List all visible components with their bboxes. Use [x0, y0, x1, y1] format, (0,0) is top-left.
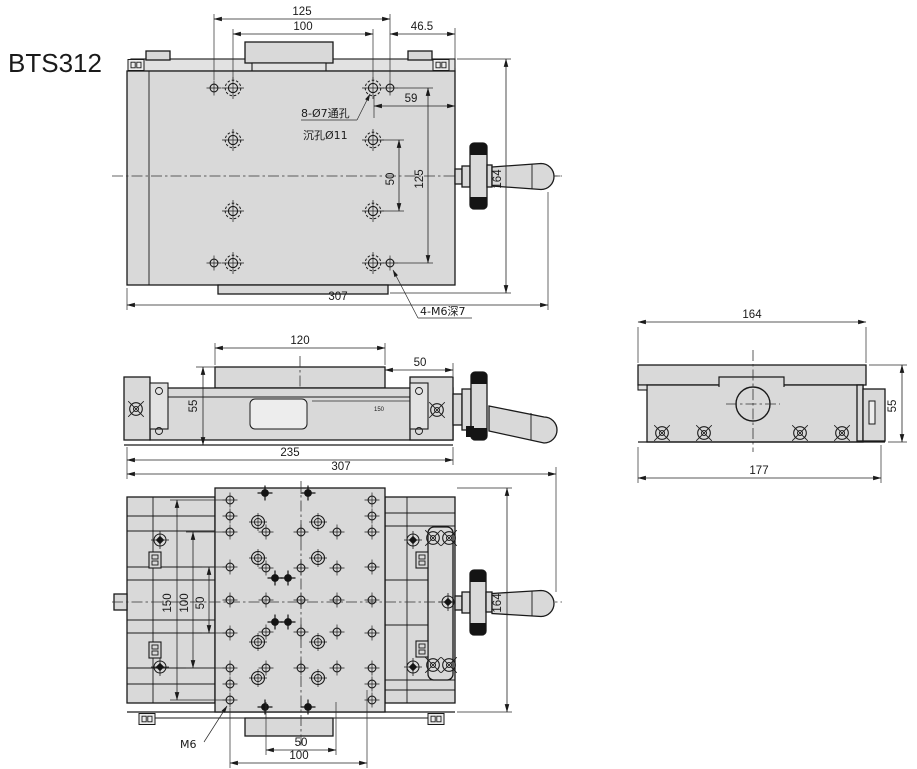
bottom-view: 307 — [112, 461, 562, 768]
drawing-page: BTS312 — [0, 0, 917, 769]
dim-46-5: 46.5 — [411, 21, 433, 33]
note-through-holes-line2: 沉孔Ø11 — [303, 129, 348, 142]
dim-100-top: 100 — [293, 21, 312, 33]
top-view: 125 100 46.5 59 50 125 164 307 — [112, 6, 562, 318]
side-view: 150 0 120 — [124, 335, 557, 479]
note-m6-thread: M6 — [180, 738, 197, 751]
dim-307-bottom-view: 307 — [331, 461, 350, 473]
dim-50-vertical: 50 — [195, 597, 207, 610]
end-body — [647, 385, 863, 442]
handwheel-assembly — [455, 143, 560, 209]
technical-drawing-canvas: BTS312 — [0, 0, 917, 769]
note-through-holes-line1: 8-Ø7通孔 — [301, 107, 350, 120]
corner-clamp — [428, 714, 444, 725]
dim-164-top-view: 164 — [492, 169, 504, 189]
dim-55-height: 55 — [188, 400, 200, 413]
dim-307-top-view: 307 — [328, 291, 347, 303]
dim-55-end-view: 55 — [887, 400, 899, 413]
page-title: BTS312 — [8, 48, 102, 78]
corner-clamp — [433, 60, 449, 71]
dim-50-handle: 50 — [414, 357, 427, 369]
dim-100-vertical: 100 — [179, 593, 191, 612]
handwheel-assembly-bottom — [455, 570, 554, 635]
dim-50-vertical: 50 — [385, 173, 397, 186]
corner-clamp — [128, 60, 144, 71]
dim-50-bottom: 50 — [295, 737, 308, 749]
dim-125-top: 125 — [292, 6, 311, 18]
handwheel-assembly-side — [453, 372, 557, 443]
end-view: 164 55 177 — [638, 309, 907, 483]
corner-clamp — [139, 714, 155, 725]
bottom-tab — [245, 718, 333, 736]
dim-164-end-view: 164 — [742, 309, 762, 321]
dim-177: 177 — [749, 465, 768, 477]
dim-125-vertical: 125 — [414, 169, 426, 188]
dim-164-bottom-view: 164 — [492, 593, 504, 613]
label-plate — [250, 399, 307, 429]
dim-59: 59 — [405, 93, 418, 105]
dim-120: 120 — [290, 335, 309, 347]
dim-150: 150 — [162, 593, 174, 612]
carriage-top — [245, 42, 333, 63]
note-tapped-holes: 4-M6深7 — [420, 305, 465, 318]
handle-grip — [489, 406, 557, 443]
scale-max-label: 150 — [374, 407, 385, 413]
dim-100-bottom: 100 — [289, 750, 308, 762]
dim-235: 235 — [280, 447, 299, 459]
